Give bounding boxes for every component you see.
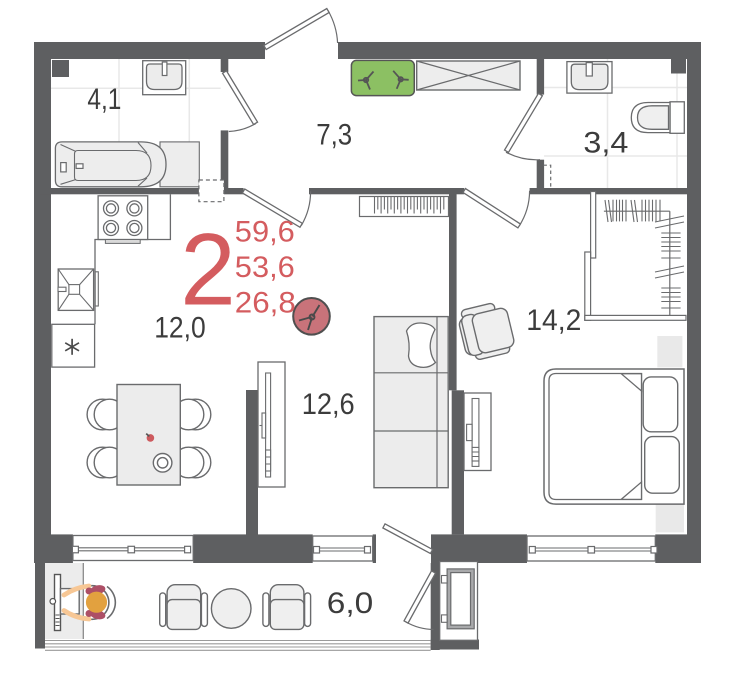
svg-text:7,3: 7,3: [316, 119, 352, 152]
svg-text:2: 2: [180, 213, 236, 327]
svg-text:14,2: 14,2: [526, 304, 581, 337]
svg-text:53,6: 53,6: [235, 251, 295, 284]
svg-text:4,1: 4,1: [87, 83, 121, 116]
svg-text:12,6: 12,6: [302, 388, 355, 421]
svg-text:6,0: 6,0: [327, 587, 374, 620]
svg-text:26,8: 26,8: [235, 287, 296, 320]
svg-text:59,6: 59,6: [235, 216, 295, 249]
svg-text:3,4: 3,4: [583, 127, 628, 160]
